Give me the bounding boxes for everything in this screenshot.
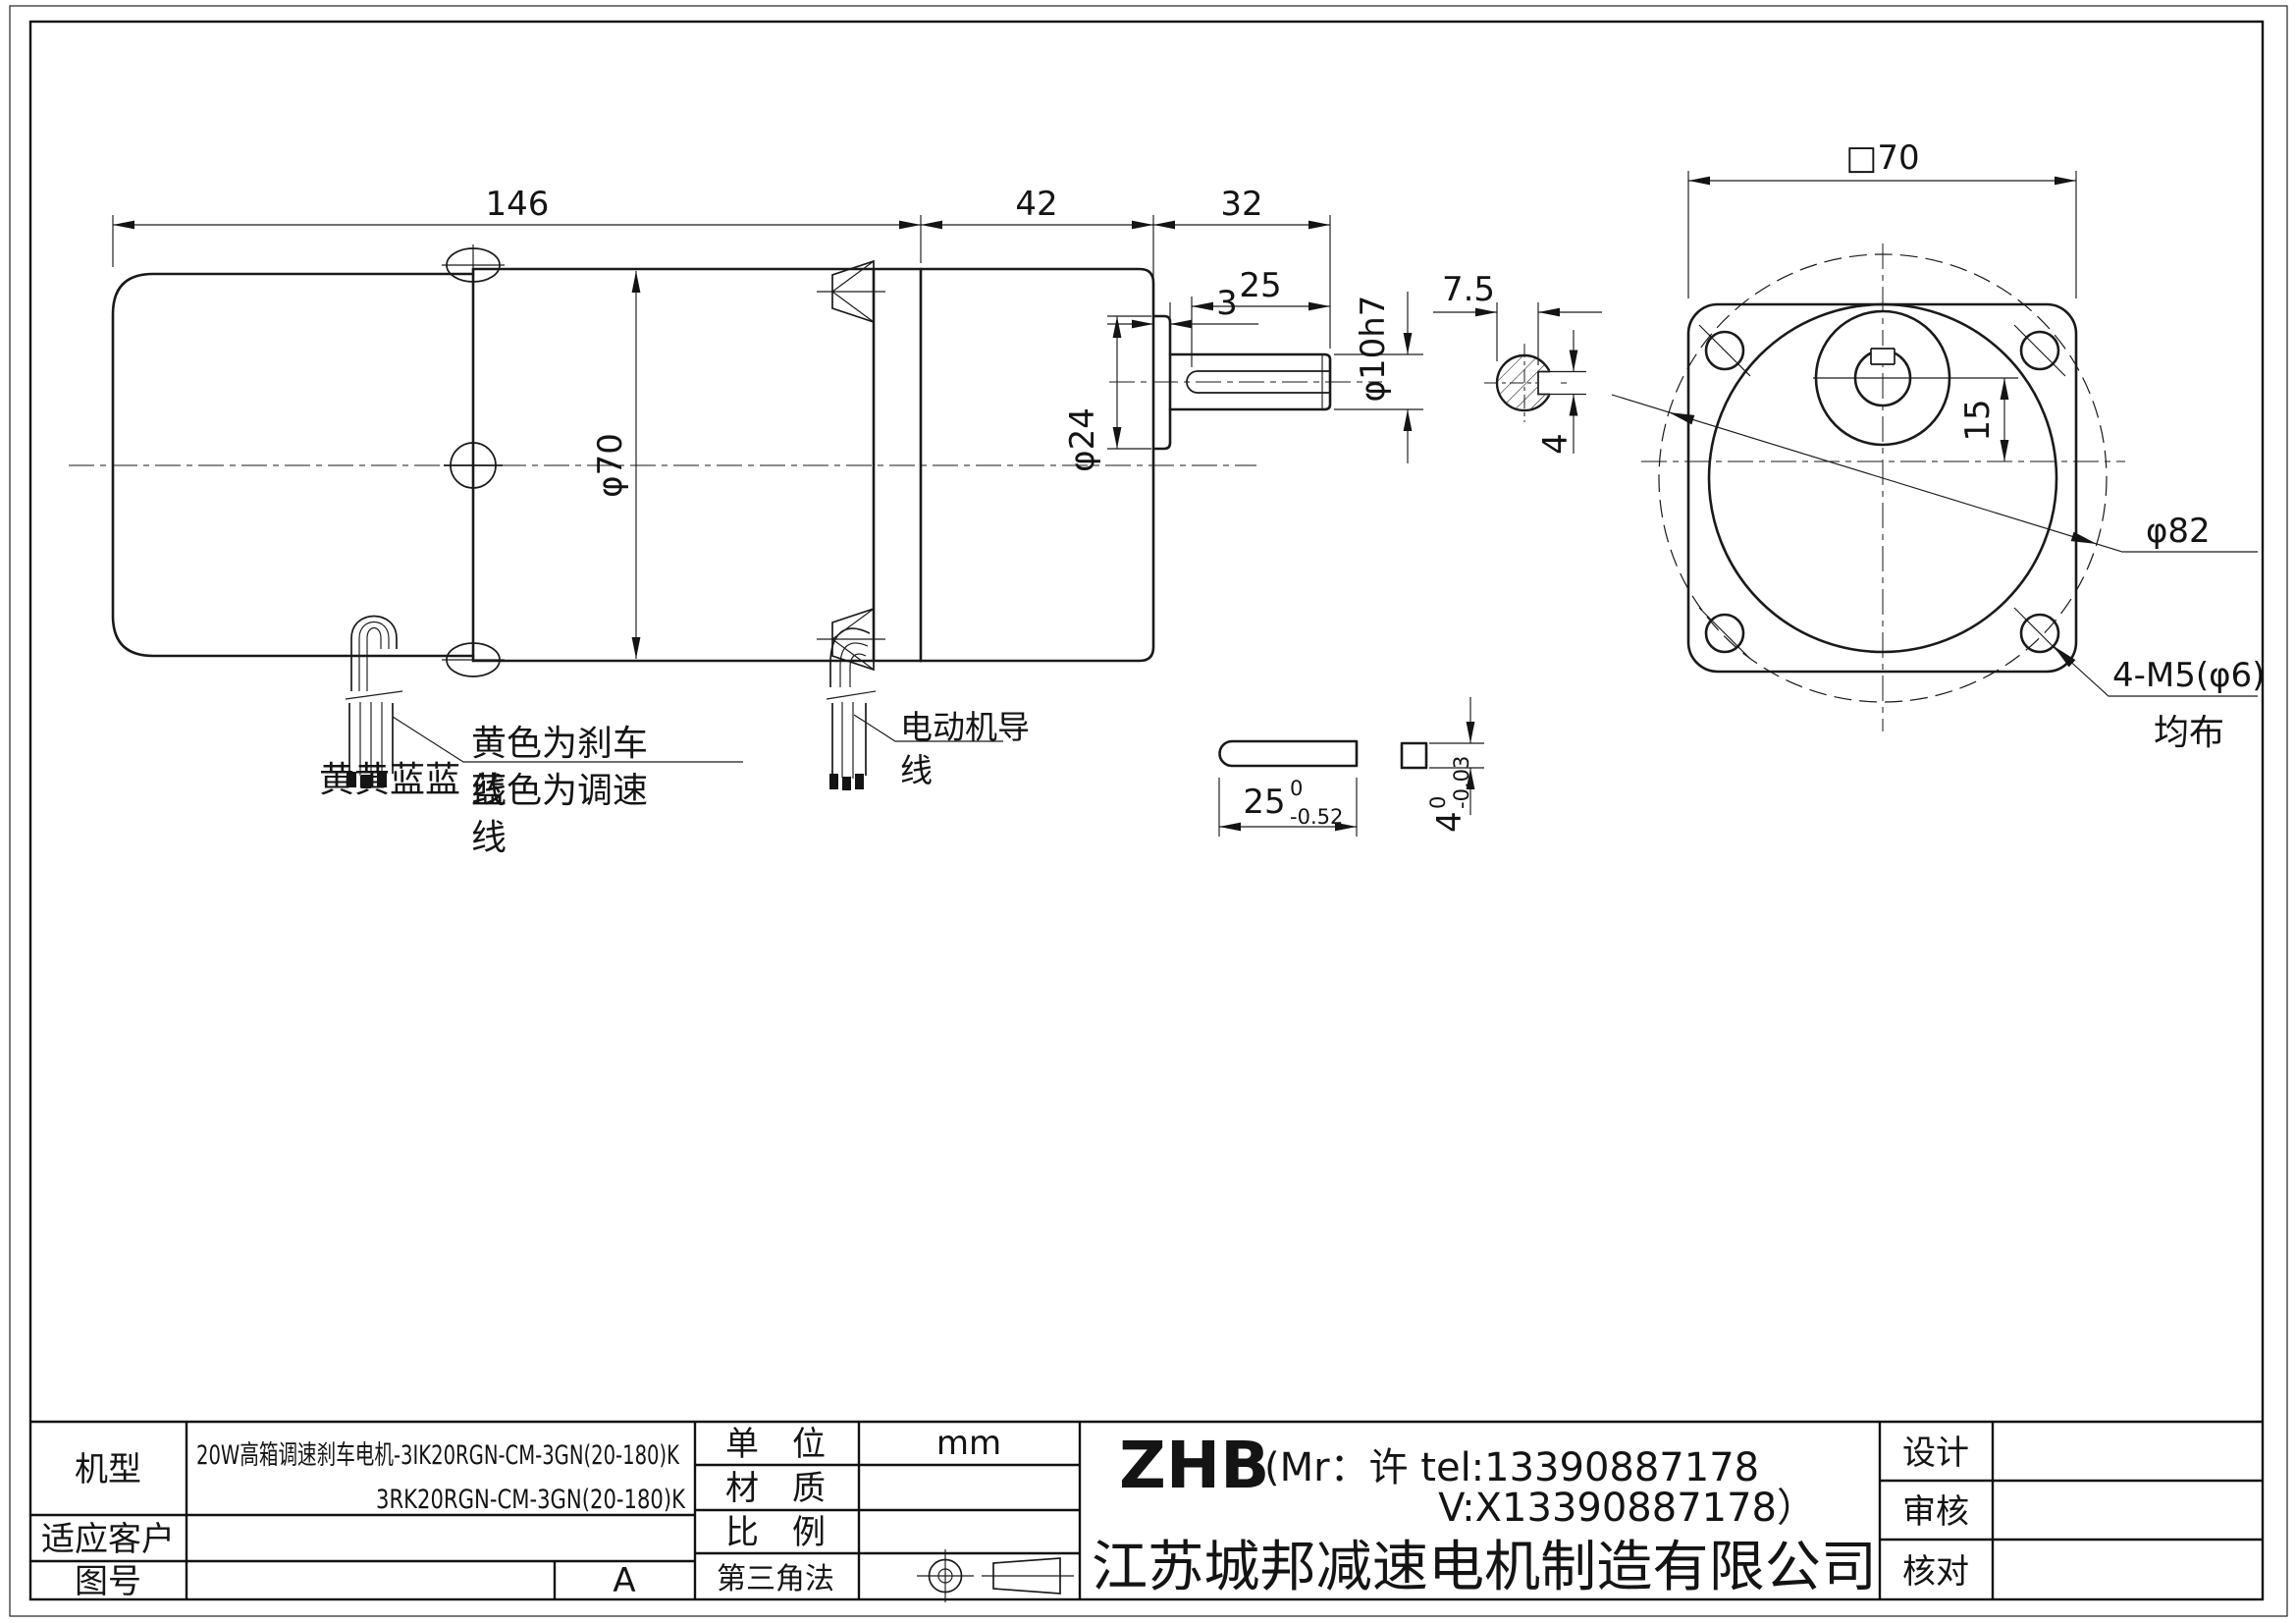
dim-bolt-circle: φ82 [2146, 512, 2211, 551]
side-view-dimensions: 146 42 32 3 25 φ70 φ24 φ10h7 [113, 185, 1423, 659]
third-angle-symbol [917, 1549, 1074, 1602]
dim-key-height: 4 [1430, 811, 1469, 833]
brand-logo-text: ZHB [1119, 1428, 1269, 1503]
projection-label: 第三角法 [717, 1562, 834, 1596]
model-line2: 3RK20RGN-CM-3GN(20-180)K [376, 1485, 686, 1515]
drawing-no-label: 图号 [75, 1562, 141, 1601]
dim-key-length-tol-lower: -0.52 [1290, 805, 1343, 829]
design-label: 设计 [1902, 1434, 1969, 1473]
dim-length-total: 146 [486, 185, 550, 224]
dim-boss-dia: φ24 [1063, 407, 1102, 472]
dim-key-length: 25 [1243, 783, 1285, 822]
scale-label: 比 例 [725, 1513, 826, 1552]
dim-key-length-tol-upper: 0 [1290, 777, 1303, 800]
company-name: 江苏城邦减速电机制造有限公司 [1092, 1538, 1877, 1598]
speed-wire-label-l2: 线 [471, 818, 507, 858]
motor-wire-label-l2: 线 [900, 751, 933, 789]
contact-line1: (Mr：许 tel:13390887178 [1264, 1445, 1759, 1490]
dim-shaft-key-length: 25 [1239, 266, 1281, 305]
customer-label: 适应客户 [41, 1520, 175, 1559]
revision-value: A [613, 1561, 635, 1600]
side-view [69, 244, 1382, 790]
cover-screw-top [442, 244, 505, 286]
dim-shaft-offset: 15 [1958, 399, 1998, 441]
key-detail: 25 0 -0.52 4 0 -0.03 [1219, 697, 1484, 837]
material-label: 材 质 [725, 1469, 826, 1508]
brake-wire-label-l1: 黄色为刹车 [471, 724, 648, 764]
flange-view: □70 15 φ82 4-M5(φ6) 均布 [1612, 138, 2265, 753]
unit-value: mm [936, 1424, 1001, 1463]
dim-boss-offset: 3 [1216, 284, 1238, 323]
motor-wire-label-l1: 电动机导 [900, 708, 1030, 746]
drawing-border [10, 6, 2287, 1616]
dim-shaft-dia: φ10h7 [1354, 296, 1393, 403]
dim-mount-holes: 4-M5(φ6) [2112, 656, 2265, 695]
unit-label: 单 位 [725, 1425, 826, 1464]
cad-drawing: 146 42 32 3 25 φ70 φ24 φ10h7 [0, 0, 2296, 1623]
mount-holes-note: 均布 [2154, 713, 2224, 753]
shaft-section-detail: 7.5 4 [1433, 270, 1602, 455]
contact-line2: V:X13390887178） [1438, 1486, 1816, 1531]
mount-hole-top-right [2014, 325, 2065, 376]
wire-annotations: 黄黄蓝蓝 黄色为刹车 线 蓝色为调速 线 电动机导 线 [319, 708, 1030, 858]
cover-screw-center [444, 436, 503, 495]
speed-wire-label-l1: 蓝色为调速 [471, 771, 648, 811]
dim-key-height-tol-lower: -0.03 [1450, 756, 1473, 809]
wire-colors-label: 黄黄蓝蓝 [319, 760, 460, 800]
dim-key-height-tol-upper: 0 [1426, 796, 1450, 809]
mount-hole-top-left [1699, 325, 1750, 376]
dim-key-width: 4 [1536, 433, 1575, 455]
model-line1: 20W高箱调速刹车电机-3IK20RGN-CM-3GN(20-180)K [196, 1440, 680, 1471]
model-label: 机型 [75, 1450, 141, 1489]
check-label: 核对 [1902, 1552, 1969, 1592]
dim-length-gearbox: 42 [1015, 185, 1057, 224]
title-block: 机型 20W高箱调速刹车电机-3IK20RGN-CM-3GN(20-180)K … [30, 1422, 2263, 1602]
key-side-view [1220, 741, 1358, 766]
dim-flange-square: □70 [1845, 138, 1919, 178]
dim-body-dia: φ70 [591, 433, 630, 498]
drawing-sheet: 146 42 32 3 25 φ70 φ24 φ10h7 [0, 0, 2296, 1623]
dim-length-shaft: 32 [1220, 185, 1262, 224]
review-label: 审核 [1902, 1492, 1969, 1532]
key-section-view [1402, 743, 1426, 768]
mount-hole-bottom-left [1699, 608, 1750, 659]
dim-key-flat: 7.5 [1442, 270, 1495, 309]
